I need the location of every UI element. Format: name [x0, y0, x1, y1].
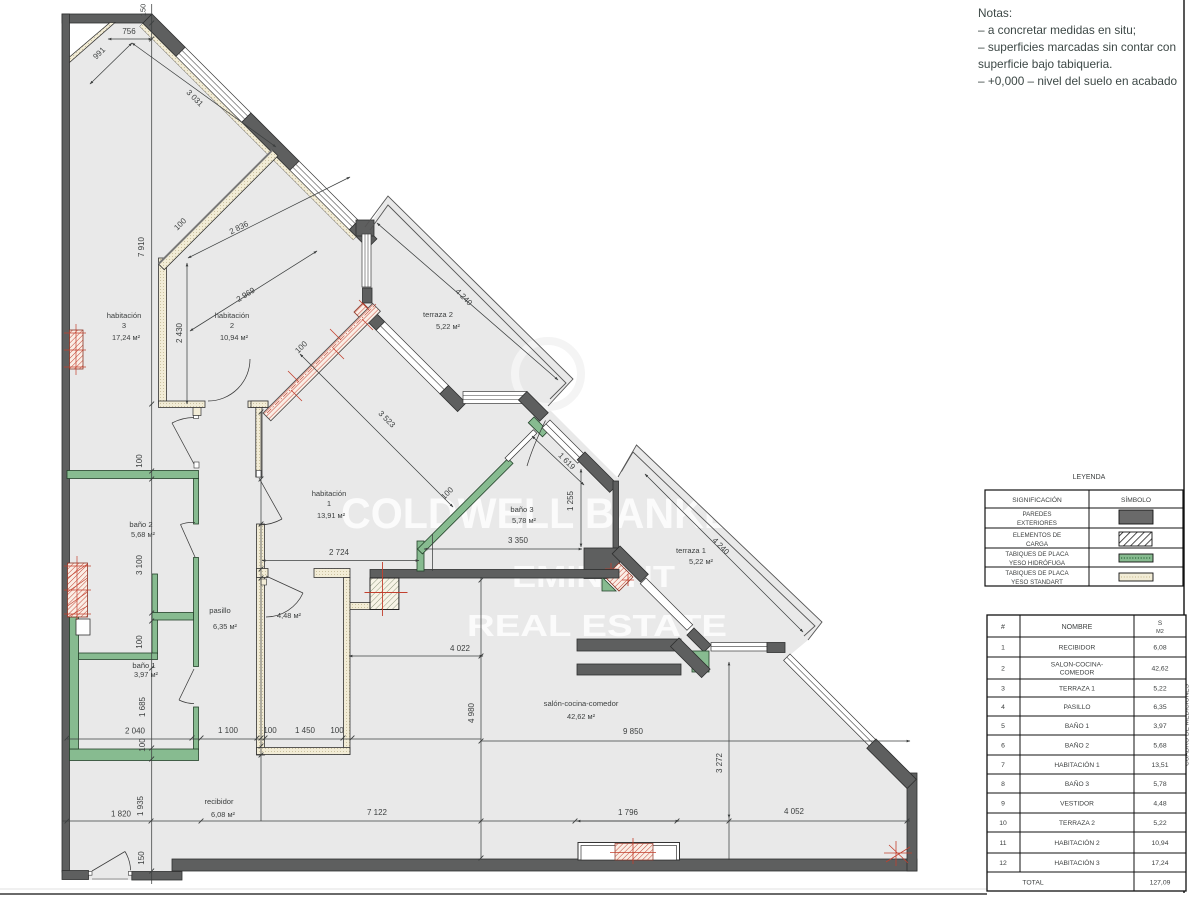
svg-text:TABIQUES DE PLACA: TABIQUES DE PLACA — [1005, 570, 1069, 577]
svg-text:baño 3: baño 3 — [510, 505, 533, 514]
svg-text:3: 3 — [122, 321, 126, 330]
svg-text:5: 5 — [1001, 723, 1005, 730]
svg-text:CARGA: CARGA — [1026, 541, 1049, 548]
svg-text:terraza 2: terraza 2 — [423, 310, 453, 319]
svg-text:3 350: 3 350 — [508, 536, 529, 545]
svg-text:5,22 м²: 5,22 м² — [689, 557, 714, 566]
svg-text:superficie bajo tabiqueria.: superficie bajo tabiqueria. — [978, 57, 1112, 71]
svg-text:3,97: 3,97 — [1153, 723, 1166, 730]
svg-text:HABITACIÓN 2: HABITACIÓN 2 — [1054, 838, 1100, 847]
svg-text:SIGNIFICACIÓN: SIGNIFICACIÓN — [1012, 495, 1062, 504]
svg-text:2: 2 — [230, 321, 234, 330]
svg-text:17,24: 17,24 — [1151, 860, 1168, 867]
svg-text:127,09: 127,09 — [1150, 880, 1171, 887]
svg-text:S: S — [1158, 620, 1163, 627]
svg-text:4: 4 — [1001, 704, 1005, 711]
svg-text:TABIQUES DE PLACA: TABIQUES DE PLACA — [1005, 551, 1069, 558]
svg-text:baño 2: baño 2 — [129, 520, 152, 529]
svg-text:2 430: 2 430 — [175, 322, 184, 343]
svg-text:4 022: 4 022 — [450, 644, 471, 653]
svg-text:ELEMENTOS DE: ELEMENTOS DE — [1013, 532, 1061, 539]
svg-text:42,62: 42,62 — [1151, 666, 1168, 673]
svg-text:3 272: 3 272 — [715, 752, 724, 773]
svg-text:LEYENDA: LEYENDA — [1073, 474, 1106, 481]
svg-text:– a concretar medidas en situ;: – a concretar medidas en situ; — [978, 23, 1136, 37]
svg-text:6,35 м²: 6,35 м² — [213, 622, 238, 631]
svg-text:habitación: habitación — [312, 489, 347, 498]
svg-text:1 100: 1 100 — [218, 726, 239, 735]
svg-text:TERRAZA 2: TERRAZA 2 — [1059, 820, 1095, 827]
svg-text:SÍMBOLO: SÍMBOLO — [1121, 495, 1151, 504]
svg-text:7: 7 — [1001, 762, 1005, 769]
svg-text:100: 100 — [135, 635, 144, 649]
svg-text:1 685: 1 685 — [138, 696, 147, 717]
svg-text:100: 100 — [263, 726, 277, 735]
svg-text:NOMBRE: NOMBRE — [1062, 624, 1093, 631]
svg-text:1 935: 1 935 — [136, 795, 145, 816]
svg-text:Notas:: Notas: — [978, 6, 1012, 20]
svg-text:6,08: 6,08 — [1153, 645, 1166, 652]
svg-text:1: 1 — [1001, 645, 1005, 652]
svg-text:#: # — [1001, 624, 1005, 631]
svg-text:7 910: 7 910 — [137, 236, 146, 257]
svg-text:3: 3 — [1001, 686, 1005, 693]
svg-text:YESO HIDRÓFUGA: YESO HIDRÓFUGA — [1009, 560, 1066, 567]
svg-text:756: 756 — [122, 27, 136, 36]
svg-text:4,48 м²: 4,48 м² — [277, 611, 302, 620]
svg-text:5,78: 5,78 — [1153, 781, 1166, 788]
svg-text:8: 8 — [1001, 781, 1005, 788]
svg-text:baño 1: baño 1 — [132, 661, 155, 670]
svg-text:pasillo: pasillo — [209, 606, 231, 615]
svg-text:5,22 м²: 5,22 м² — [436, 322, 461, 331]
svg-text:1 820: 1 820 — [111, 810, 132, 819]
svg-text:7 122: 7 122 — [367, 808, 388, 817]
svg-text:HABITACIÓN 1: HABITACIÓN 1 — [1054, 760, 1100, 769]
svg-text:SALON-COCINA-: SALON-COCINA- — [1051, 662, 1103, 669]
svg-text:1 450: 1 450 — [295, 726, 316, 735]
svg-text:9: 9 — [1001, 801, 1005, 808]
svg-text:10,94 м²: 10,94 м² — [220, 333, 249, 342]
svg-text:100: 100 — [138, 738, 147, 752]
svg-text:TOTAL: TOTAL — [1022, 880, 1043, 887]
svg-text:100: 100 — [135, 454, 144, 468]
svg-text:habitación: habitación — [215, 311, 250, 320]
svg-text:YESO STANDART: YESO STANDART — [1011, 579, 1063, 586]
svg-text:M2: M2 — [1156, 629, 1164, 635]
svg-text:6: 6 — [1001, 743, 1005, 750]
svg-text:5,78 м²: 5,78 м² — [512, 516, 537, 525]
svg-text:COMEDOR: COMEDOR — [1060, 670, 1095, 677]
svg-text:– superficies marcadas sin con: – superficies marcadas sin contar con — [978, 40, 1176, 54]
svg-text:11: 11 — [999, 840, 1006, 847]
svg-text:HABITACIÓN 3: HABITACIÓN 3 — [1054, 858, 1100, 867]
svg-text:9 850: 9 850 — [623, 727, 644, 736]
svg-text:TERRAZA 1: TERRAZA 1 — [1059, 686, 1095, 693]
svg-text:13,51: 13,51 — [1151, 762, 1168, 769]
svg-text:150: 150 — [137, 851, 146, 865]
svg-text:17,24 м²: 17,24 м² — [112, 333, 141, 342]
svg-text:4,48: 4,48 — [1153, 801, 1166, 808]
svg-text:BAÑO 1: BAÑO 1 — [1065, 721, 1090, 730]
svg-text:5,68: 5,68 — [1153, 743, 1166, 750]
svg-text:100: 100 — [330, 726, 344, 735]
svg-text:PASILLO: PASILLO — [1064, 704, 1091, 711]
svg-text:10,94: 10,94 — [1151, 840, 1168, 847]
svg-text:salón-cocina-comedor: salón-cocina-comedor — [544, 699, 619, 708]
svg-text:1: 1 — [327, 499, 331, 508]
svg-text:3 100: 3 100 — [135, 554, 144, 575]
svg-text:150: 150 — [139, 4, 148, 17]
svg-text:2: 2 — [1001, 666, 1005, 673]
svg-text:terraza 1: terraza 1 — [676, 546, 706, 555]
svg-text:6,35: 6,35 — [1153, 704, 1166, 711]
svg-text:EXTERIORES: EXTERIORES — [1017, 520, 1057, 527]
svg-text:5,22: 5,22 — [1153, 820, 1166, 827]
svg-text:2 040: 2 040 — [125, 727, 146, 736]
svg-text:PAREDES: PAREDES — [1022, 511, 1051, 518]
svg-text:42,62 м²: 42,62 м² — [567, 712, 596, 721]
svg-text:habitación: habitación — [107, 311, 142, 320]
svg-text:12: 12 — [999, 860, 1007, 867]
svg-text:5,68 м²: 5,68 м² — [131, 530, 156, 539]
svg-text:4 980: 4 980 — [467, 702, 476, 723]
svg-text:4 052: 4 052 — [784, 807, 805, 816]
svg-text:2 724: 2 724 — [329, 548, 350, 557]
svg-text:6,08 м²: 6,08 м² — [211, 810, 236, 819]
svg-text:VESTIDOR: VESTIDOR — [1060, 801, 1094, 808]
svg-text:recibidor: recibidor — [204, 797, 234, 806]
svg-text:1 255: 1 255 — [566, 490, 575, 511]
svg-text:– +0,000 – nivel del suelo en: – +0,000 – nivel del suelo en acabado — [978, 74, 1178, 88]
svg-text:BAÑO 2: BAÑO 2 — [1065, 741, 1090, 750]
svg-text:1 796: 1 796 — [618, 808, 639, 817]
svg-text:BAÑO 3: BAÑO 3 — [1065, 779, 1090, 788]
svg-text:13,91 м²: 13,91 м² — [317, 511, 346, 520]
svg-text:RECIBIDOR: RECIBIDOR — [1059, 645, 1096, 652]
svg-text:10: 10 — [999, 820, 1007, 827]
svg-text:5,22: 5,22 — [1153, 686, 1166, 693]
svg-text:3,97 м²: 3,97 м² — [134, 670, 159, 679]
